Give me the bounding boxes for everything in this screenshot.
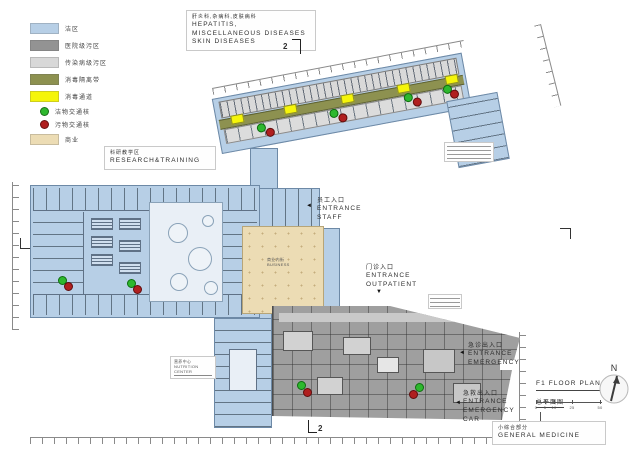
lab-bench-symbol	[119, 240, 141, 252]
floor-plan-canvas: 洁区医院级污区传染病级污区消毒隔离带消毒通道洁物交通核污物交通核商业 肝炎科,杂…	[0, 0, 640, 452]
dimension-ruler-left	[12, 182, 19, 330]
legend-item: 消毒隔离带	[30, 71, 160, 88]
outpatient-entrance-zh: 门诊入口	[366, 264, 417, 272]
emergency-car-entrance-label: 急救出入口 ENTRANCE EMERGENCY CAR	[463, 390, 515, 424]
legend-swatch-marker	[30, 23, 59, 34]
general-medicine-leader-line	[540, 412, 541, 421]
emergency-entrance-en1: ENTRANCE	[468, 350, 520, 359]
outpatient-entrance-arrow-icon: ▼	[376, 289, 382, 295]
staff-entrance-en1: ENTRANCE	[317, 205, 362, 214]
legend-item-label: 污物交通核	[55, 120, 90, 129]
emergency-entrance-zh: 急诊出入口	[468, 342, 520, 350]
outpatient-entrance-en2: OUTPATIENT	[366, 281, 417, 290]
legend-item: 消毒通道	[30, 88, 160, 105]
legend-item-label: 医院级污区	[65, 41, 100, 50]
commerce-label-en: BUSINESS	[267, 262, 290, 267]
legend: 洁区医院级污区传染病级污区消毒隔离带消毒通道洁物交通核污物交通核商业	[30, 20, 160, 148]
compass-north-letter: N	[611, 363, 618, 373]
lab-bench-symbol	[119, 262, 141, 274]
tree-symbol	[170, 273, 188, 291]
commerce-label: 商业内街 BUSINESS	[267, 257, 290, 267]
dirty-traffic-node	[409, 390, 418, 399]
tree-symbol	[204, 281, 218, 295]
dirty-traffic-node	[265, 127, 275, 137]
staff-entrance-label: 员工入口 ENTRANCE STAFF	[317, 197, 362, 223]
title-zh: 肝炎科,杂病科,皮肤病科	[192, 14, 310, 21]
compass: N	[596, 362, 632, 411]
commerce-block: 商业内街 BUSINESS	[242, 226, 324, 314]
south-service-building	[214, 318, 272, 428]
section-marker-bottom-label: 2	[318, 424, 324, 435]
lab-bench-symbol	[91, 254, 113, 266]
tree-symbol	[202, 215, 214, 227]
legend-item: 传染病级污区	[30, 54, 160, 71]
scale-bar-tick	[545, 400, 546, 404]
emergency-car-entrance-en2: EMERGENCY	[463, 407, 515, 416]
legend-item-label: 商业	[65, 135, 79, 144]
research-top-rooms	[33, 188, 257, 211]
legend-swatch-marker	[30, 57, 59, 68]
title-en-line2: MISCELLANEOUS DISEASES	[192, 30, 310, 39]
legend-item-label: 消毒隔离带	[65, 75, 100, 84]
emergency-entrance-en2: EMERGENCY	[468, 359, 520, 368]
emergency-car-entrance-zh: 急救出入口	[463, 390, 515, 398]
dimension-ruler-right-diagonal	[534, 24, 561, 107]
tree-symbol	[168, 223, 188, 243]
staff-entrance-en2: STAFF	[317, 214, 362, 223]
legend-item-label: 洁物交通核	[55, 107, 90, 116]
general-medicine-zh: 小综合部分	[498, 425, 600, 432]
lab-bench-symbol	[119, 218, 141, 230]
room-block	[423, 349, 455, 373]
title-en-line1: HEPATITIS,	[192, 21, 310, 30]
legend-item: 洁区	[30, 20, 160, 37]
legend-item-label: 传染病级污区	[65, 58, 107, 67]
research-label-zh: 科研教学区	[110, 150, 210, 157]
room-block	[283, 331, 313, 351]
dirty-traffic-node	[303, 388, 312, 397]
staff-entrance-zh: 员工入口	[317, 197, 362, 205]
annotation-text-lines	[447, 145, 491, 159]
section-marker-bottom-bracket	[308, 420, 317, 433]
research-bottom-rooms	[33, 294, 257, 315]
emergency-car-entrance-en1: ENTRANCE	[463, 398, 515, 407]
main-corridor	[279, 313, 497, 322]
lab-bench-symbol	[91, 236, 113, 248]
annotation-text-lines	[430, 296, 460, 307]
small-annotation-box	[428, 294, 462, 309]
dirty-traffic-node	[64, 282, 73, 291]
nutrition-label-en2: CENTER	[174, 369, 212, 375]
courtyard	[149, 202, 223, 302]
dirty-traffic-node	[133, 285, 142, 294]
legend-item: 污物交通核	[30, 118, 160, 131]
compass-rose: N	[596, 362, 632, 406]
legend-swatch-marker	[30, 74, 59, 85]
section-marker-top-label: 2	[283, 42, 289, 51]
legend-item: 洁物交通核	[30, 105, 160, 118]
general-medicine-label: 小综合部分 GENERAL MEDICINE	[492, 421, 606, 445]
dimension-ruler-right	[519, 332, 526, 432]
outpatient-entrance-label: 门诊入口 ENTRANCE OUTPATIENT	[366, 264, 417, 290]
lab-bench-symbol	[91, 218, 113, 230]
legend-item: 医院级污区	[30, 37, 160, 54]
scale-bar-label: 25	[569, 405, 574, 410]
legend-dot-marker	[40, 107, 49, 116]
staff-entrance-arrow-icon: ◄	[306, 203, 312, 209]
scale-bar-tick	[572, 400, 573, 404]
research-training-building	[30, 185, 260, 318]
scale-bar-label: 10	[551, 405, 556, 410]
room-block	[377, 357, 399, 373]
section-marker-right-bracket	[560, 228, 571, 239]
room-block	[317, 377, 343, 395]
general-medicine-en: GENERAL MEDICINE	[498, 432, 600, 441]
emergency-car-entrance-arrow-icon: ◄	[455, 400, 461, 406]
dimension-ruler-bottom	[30, 437, 526, 444]
tree-symbol	[188, 247, 212, 271]
corridor-east	[322, 228, 340, 314]
scale-bar-label: 0	[535, 405, 538, 410]
scale-bar-tick	[554, 400, 555, 404]
small-annotation-box	[444, 142, 494, 162]
legend-swatch-marker	[30, 40, 59, 51]
research-label-en: RESEARCH&TRAINING	[110, 157, 210, 166]
nutrition-center-label: 营养中心 NUTRITION CENTER	[170, 356, 216, 379]
research-training-label: 科研教学区 RESEARCH&TRAINING	[104, 146, 216, 170]
scale-bar: 05102550	[536, 402, 602, 406]
emergency-entrance-arrow-icon: ◄	[459, 350, 465, 356]
outpatient-entrance-en1: ENTRANCE	[366, 272, 417, 281]
scale-bar-tick	[536, 400, 537, 404]
section-marker-top: 2	[283, 36, 289, 54]
scale-bar-label: 5	[544, 405, 547, 410]
section-marker-top-bracket	[292, 39, 301, 54]
legend-swatch-marker	[30, 91, 59, 102]
room-block	[343, 337, 371, 355]
south-building-core	[229, 349, 257, 391]
legend-item-label: 消毒通道	[65, 92, 93, 101]
legend-item-label: 洁区	[65, 24, 79, 33]
legend-dot-marker	[40, 120, 49, 129]
legend-swatch-marker	[30, 134, 59, 145]
emergency-entrance-label: 急诊出入口 ENTRANCE EMERGENCY	[468, 342, 520, 368]
